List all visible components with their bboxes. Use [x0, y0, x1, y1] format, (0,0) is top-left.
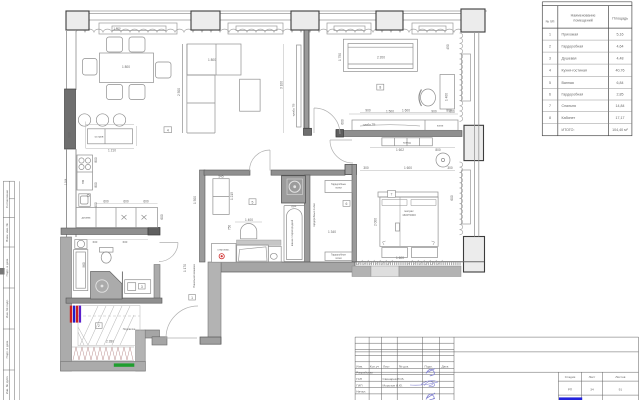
- svg-text:900: 900: [431, 110, 437, 114]
- svg-text:Подп. и дата: Подп. и дата: [5, 258, 9, 276]
- svg-text:Изм.: Изм.: [356, 364, 363, 368]
- svg-text:1: 1: [191, 296, 193, 300]
- svg-text:600: 600: [123, 240, 128, 244]
- svg-text:34: 34: [590, 387, 594, 391]
- svg-text:2 280: 2 280: [106, 340, 114, 344]
- svg-text:Свинарев Ю.Б.: Свинарев Ю.Б.: [383, 377, 405, 381]
- svg-text:полки: полки: [335, 186, 342, 189]
- svg-text:800: 800: [446, 109, 452, 113]
- svg-text:духовка: духовка: [82, 217, 91, 220]
- svg-text:4,64: 4,64: [617, 45, 624, 49]
- svg-text:Дата: Дата: [442, 364, 449, 368]
- svg-text:600: 600: [103, 200, 109, 204]
- svg-text:стир.маш.: стир.маш.: [217, 249, 229, 252]
- svg-text:17,17: 17,17: [616, 116, 625, 120]
- svg-text:8: 8: [549, 116, 551, 120]
- svg-text:1 600: 1 600: [404, 166, 412, 170]
- svg-text:1 600: 1 600: [396, 256, 404, 260]
- svg-text:900: 900: [365, 109, 371, 113]
- svg-text:Лист: Лист: [589, 375, 596, 379]
- svg-text:600: 600: [93, 240, 98, 244]
- svg-text:Морозов И.Ю.: Морозов И.Ю.: [383, 383, 404, 387]
- svg-text:Подп.: Подп.: [425, 364, 433, 368]
- svg-text:полки: полки: [335, 257, 342, 260]
- svg-text:Инв. № дубл.: Инв. № дубл.: [5, 376, 9, 395]
- svg-text:Подсветка: Подсветка: [123, 327, 136, 331]
- svg-text:1 602: 1 602: [396, 148, 404, 152]
- svg-text:6: 6: [549, 93, 551, 97]
- svg-text:полки: полки: [437, 124, 444, 127]
- svg-text:600: 600: [143, 200, 149, 204]
- svg-text:800: 800: [94, 182, 98, 188]
- svg-text:Прихожая: Прихожая: [562, 33, 579, 37]
- svg-text:750: 750: [228, 225, 232, 231]
- svg-text:800: 800: [435, 148, 441, 152]
- svg-text:600: 600: [341, 119, 345, 125]
- svg-text:600: 600: [450, 195, 454, 201]
- svg-text:тумба ТВ: тумба ТВ: [363, 122, 376, 126]
- svg-text:14,84: 14,84: [616, 104, 625, 108]
- svg-text:2: 2: [98, 324, 100, 328]
- svg-text:545: 545: [218, 175, 224, 179]
- svg-text:остров: остров: [95, 135, 104, 139]
- svg-text:3: 3: [549, 57, 551, 61]
- svg-text:2: 2: [549, 45, 551, 49]
- svg-text:ГИП: ГИП: [356, 383, 362, 387]
- svg-text:1 500: 1 500: [193, 196, 197, 204]
- svg-text:Взам. инв. №: Взам. инв. №: [5, 222, 9, 241]
- svg-text:7: 7: [391, 193, 393, 197]
- svg-text:91: 91: [619, 387, 623, 391]
- svg-text:Разработал: Разработал: [356, 371, 373, 375]
- svg-text:Ванная: Ванная: [562, 81, 574, 85]
- svg-text:7: 7: [549, 104, 551, 108]
- svg-text:1 800: 1 800: [114, 27, 121, 31]
- svg-text:1: 1: [549, 33, 551, 37]
- svg-text:2 500: 2 500: [177, 88, 181, 96]
- svg-text:4,48: 4,48: [617, 57, 624, 61]
- svg-text:5: 5: [549, 81, 551, 85]
- svg-text:1 215: 1 215: [230, 192, 234, 200]
- svg-text:1600*2000: 1600*2000: [402, 213, 416, 217]
- svg-text:1 170: 1 170: [183, 264, 187, 272]
- svg-text:помещений: помещений: [573, 19, 592, 23]
- svg-text:Спальня: Спальня: [562, 104, 576, 108]
- svg-text:3: 3: [141, 285, 143, 289]
- svg-text:ИТОГО:: ИТОГО:: [562, 128, 575, 132]
- svg-text:300: 300: [363, 166, 369, 170]
- svg-text:1 400: 1 400: [445, 93, 449, 101]
- svg-text:РП: РП: [568, 387, 572, 391]
- svg-text:4: 4: [167, 128, 169, 132]
- svg-text:1 340: 1 340: [328, 230, 336, 234]
- svg-text:Кабинет: Кабинет: [562, 116, 576, 120]
- svg-text:1 210: 1 210: [108, 149, 116, 153]
- svg-text:Подп. и дата: Подп. и дата: [5, 340, 9, 358]
- svg-text:2 000: 2 000: [374, 218, 378, 226]
- svg-text:4: 4: [549, 69, 551, 73]
- svg-text:600: 600: [123, 200, 129, 204]
- svg-text:ГАП: ГАП: [356, 377, 362, 381]
- svg-text:№ док.: № док.: [399, 364, 409, 368]
- svg-text:1 500: 1 500: [386, 110, 394, 114]
- svg-text:Инв. № подл.: Инв. № подл.: [5, 299, 9, 318]
- svg-text:6: 6: [346, 202, 348, 206]
- svg-text:Начал.: Начал.: [356, 390, 366, 394]
- svg-text:комод: комод: [403, 140, 411, 144]
- svg-text:Панельная машина: Панельная машина: [192, 264, 196, 288]
- svg-text:1 600: 1 600: [402, 109, 410, 113]
- svg-text:тумба ТВ: тумба ТВ: [292, 104, 296, 117]
- svg-text:Душевая: Душевая: [562, 57, 577, 61]
- svg-text:5: 5: [252, 200, 254, 204]
- svg-text:Стадия: Стадия: [565, 375, 576, 379]
- svg-text:душ.: душ.: [291, 205, 297, 208]
- svg-text:Кухня-гостиная: Кухня-гостиная: [562, 69, 587, 73]
- svg-text:ванна с перегородкой: ванна с перегородкой: [290, 219, 294, 246]
- svg-text:Листов: Листов: [615, 375, 625, 379]
- svg-text:2 200: 2 200: [377, 56, 385, 60]
- svg-text:8: 8: [379, 86, 381, 90]
- svg-text:Гардеробная: Гардеробная: [562, 45, 584, 49]
- svg-text:104,40 м²: 104,40 м²: [612, 128, 628, 132]
- svg-text:1 800: 1 800: [208, 58, 216, 62]
- svg-text:5,16: 5,16: [617, 33, 624, 37]
- svg-text:1 400: 1 400: [245, 218, 253, 222]
- svg-text:1 800: 1 800: [122, 65, 130, 69]
- svg-text:1 164: 1 164: [64, 178, 68, 185]
- svg-text:6,84: 6,84: [617, 81, 624, 85]
- svg-text:1 750: 1 750: [338, 53, 342, 61]
- svg-text:450: 450: [446, 44, 450, 50]
- svg-text:Наименование: Наименование: [571, 14, 596, 18]
- svg-text:Площадь: Площадь: [612, 16, 628, 20]
- svg-text:800: 800: [94, 157, 98, 163]
- svg-text:2,85: 2,85: [617, 93, 624, 97]
- svg-text:40,76: 40,76: [616, 69, 625, 73]
- svg-text:900: 900: [68, 132, 72, 138]
- svg-text:600: 600: [160, 214, 164, 220]
- svg-text:Лист: Лист: [383, 364, 390, 368]
- svg-text:300: 300: [447, 166, 453, 170]
- svg-text:№ п/п: № п/п: [546, 19, 555, 23]
- svg-text:Кол.уч: Кол.уч: [370, 364, 380, 368]
- svg-text:Гардеробная: Гардеробная: [562, 93, 584, 97]
- svg-text:400: 400: [94, 202, 98, 208]
- svg-text:ПМ: ПМ: [81, 179, 85, 184]
- svg-text:960: 960: [82, 262, 86, 268]
- svg-text:Согласовано: Согласовано: [5, 190, 9, 208]
- svg-text:3 100: 3 100: [280, 81, 284, 89]
- svg-text:гардеробные полки: гардеробные полки: [312, 203, 316, 227]
